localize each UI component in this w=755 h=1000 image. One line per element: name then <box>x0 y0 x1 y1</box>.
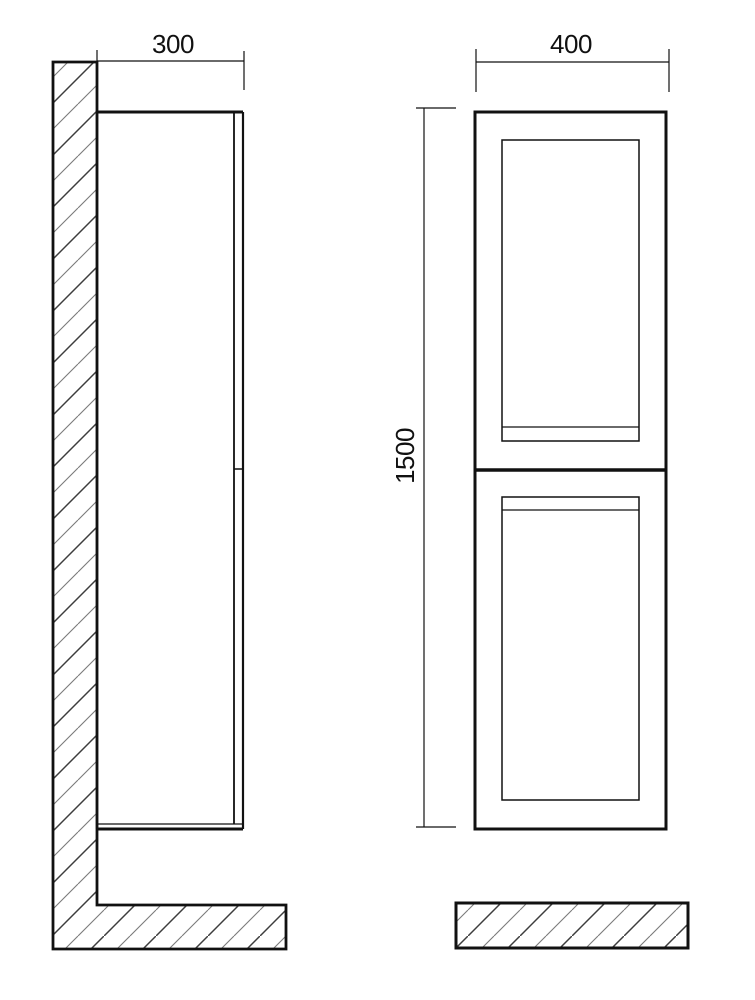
dimension-front-width: 400 <box>476 29 669 92</box>
dimension-side-depth: 300 <box>97 29 244 90</box>
floor-section-right <box>456 903 688 948</box>
side-view: 300 <box>53 29 286 949</box>
wall-and-floor-section-left <box>53 62 286 949</box>
dimension-label-width: 400 <box>550 29 592 59</box>
dimension-label-depth: 300 <box>152 29 194 59</box>
cabinet-technical-drawing: 300 400 <box>0 0 755 1000</box>
technical-drawing-page: 300 400 <box>0 0 755 1000</box>
front-view: 400 1500 <box>390 29 688 948</box>
cabinet-side-profile <box>97 112 243 829</box>
dimension-label-height: 1500 <box>390 428 420 484</box>
dimension-front-height: 1500 <box>390 108 456 827</box>
